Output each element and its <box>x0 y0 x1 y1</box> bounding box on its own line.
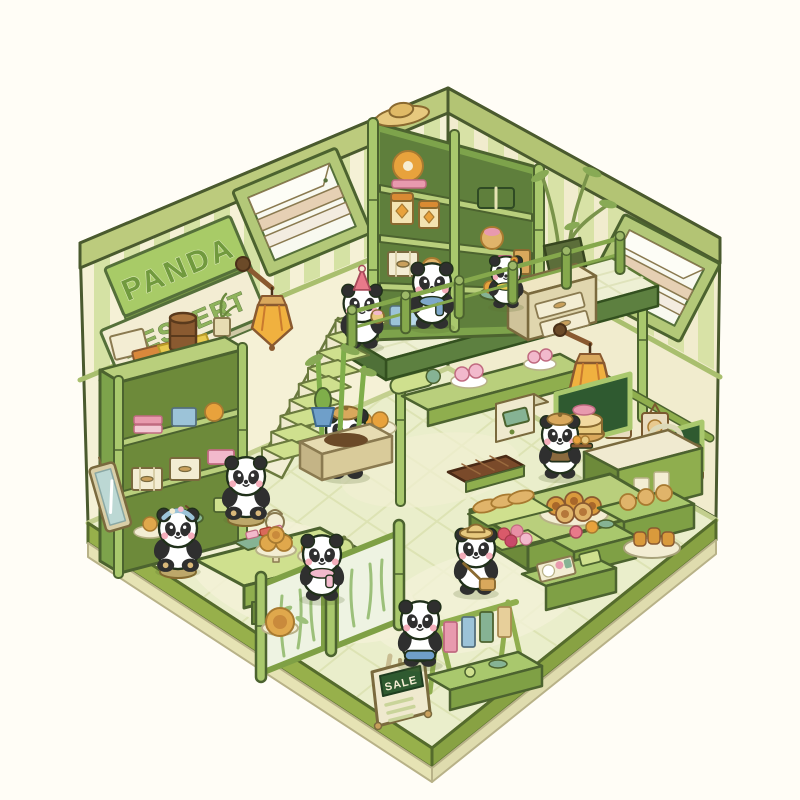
railing-post <box>508 266 517 304</box>
towel <box>480 612 493 642</box>
railing-post <box>562 251 571 289</box>
panda-dessert-shop-illustration: PANDA DESSERT SHOP <box>0 0 800 800</box>
railing-post <box>348 310 357 348</box>
panda-seated-left <box>219 456 272 525</box>
satchel-bag <box>480 579 495 590</box>
towel <box>444 622 457 652</box>
towel <box>462 617 475 647</box>
railing-post <box>616 236 625 274</box>
serving-tray <box>571 444 593 449</box>
towel <box>498 607 511 637</box>
cactus-pot <box>312 388 334 426</box>
scene-canvas: PANDA DESSERT SHOP <box>0 0 800 800</box>
pink-slab <box>392 180 426 188</box>
railing-post <box>455 280 464 318</box>
railing-post <box>401 295 410 333</box>
panda-seated-headband <box>151 506 204 577</box>
